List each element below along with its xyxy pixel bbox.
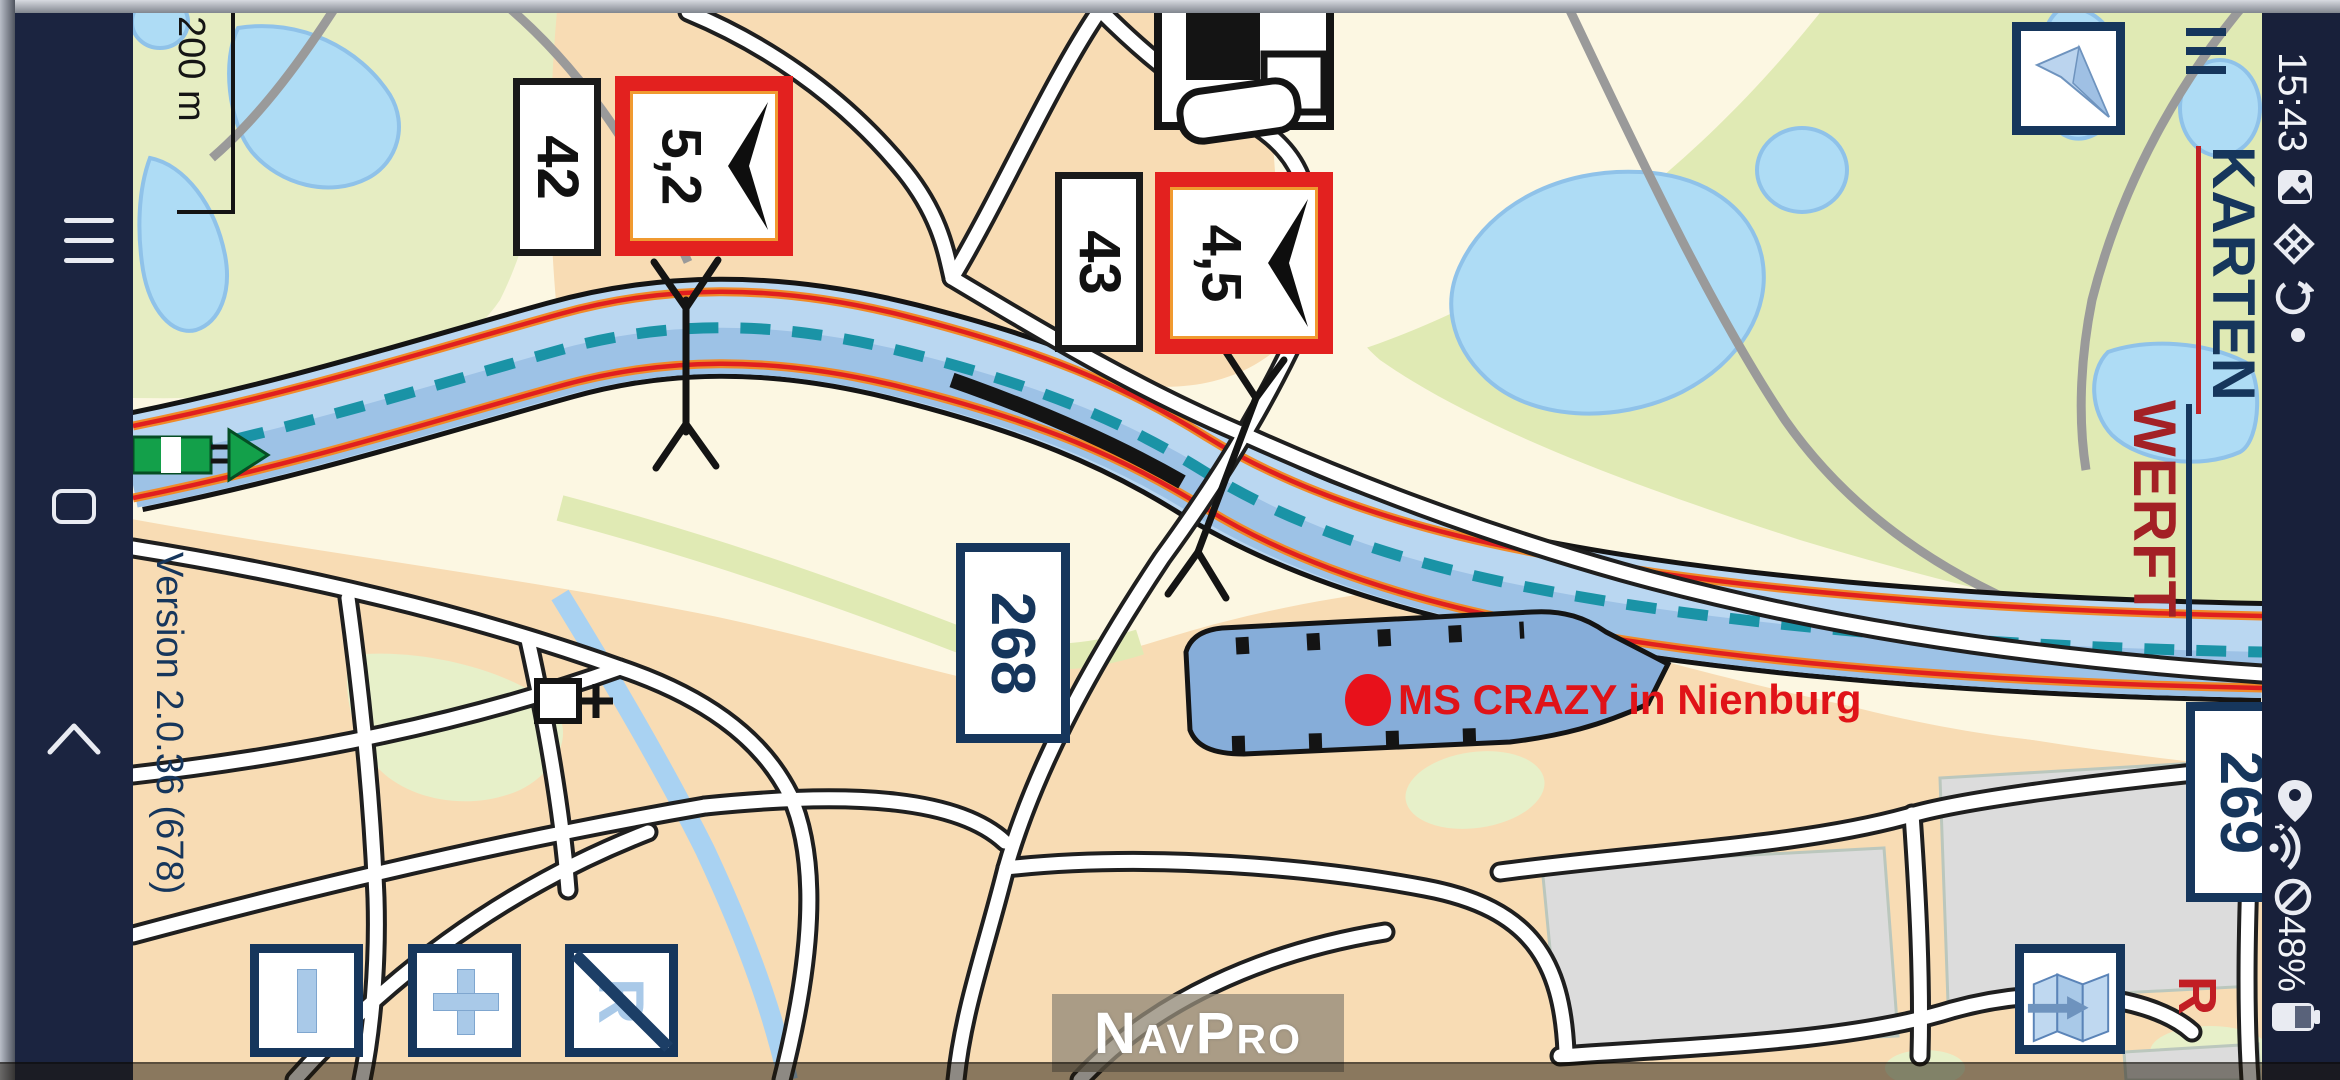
version-label: Version 2.0.36 (678) bbox=[147, 552, 190, 894]
android-nav-bar bbox=[15, 0, 133, 1080]
route-letter: R bbox=[2166, 976, 2228, 1015]
hectometer-sign-5-2: 5,2 bbox=[615, 76, 793, 256]
screen-bezel-left bbox=[0, 0, 15, 1080]
wifi-icon bbox=[2266, 824, 2316, 872]
menu-icon bbox=[2186, 28, 2226, 36]
tank-symbol-icon bbox=[1158, 0, 1330, 144]
navpro-app-screen: 200 m Version 2.0.36 (678) 42 5,2 43 4,5… bbox=[0, 0, 2340, 1080]
menu-icon bbox=[2186, 47, 2226, 55]
scale-label: 200 m bbox=[169, 16, 212, 122]
zoom-out-button[interactable] bbox=[250, 944, 363, 1057]
km-sign-43: 43 bbox=[1055, 172, 1143, 352]
vessel-position-dot[interactable] bbox=[1345, 674, 1391, 726]
waypoint-sign-268: 268 bbox=[956, 543, 1070, 743]
battery-percent: 48% bbox=[2269, 916, 2312, 992]
logo-text-bottom: WERFT bbox=[2125, 108, 2183, 692]
app-name: NavPro bbox=[1094, 1000, 1302, 1067]
hectometer-sign-4-5: 4,5 bbox=[1155, 172, 1333, 354]
pennant-icon bbox=[718, 96, 772, 236]
location-icon bbox=[2276, 778, 2314, 824]
menu-icon bbox=[64, 218, 114, 223]
record-track-button[interactable]: R bbox=[565, 944, 678, 1057]
battery-icon bbox=[2270, 998, 2324, 1036]
logo-text-top: KARTEN bbox=[2204, 108, 2262, 692]
screen-bezel-top bbox=[0, 0, 2340, 13]
vessel-marker-label: MS CRAZY in Nienburg bbox=[1398, 674, 1862, 726]
kartenwerft-logo: KARTEN WERFT bbox=[2130, 108, 2262, 692]
menu-icon bbox=[2186, 66, 2226, 74]
map-menu-button[interactable] bbox=[2186, 28, 2226, 78]
home-button[interactable] bbox=[52, 489, 96, 524]
zoom-in-button[interactable] bbox=[408, 944, 521, 1057]
dnd-icon bbox=[2272, 876, 2314, 918]
north-arrow-icon bbox=[2021, 31, 2116, 126]
no-data-icon bbox=[2272, 222, 2316, 266]
zoom-in-icon bbox=[433, 969, 497, 1033]
back-button[interactable] bbox=[44, 714, 104, 758]
north-arrow-button[interactable] bbox=[2012, 22, 2125, 135]
nautical-map-canvas[interactable] bbox=[0, 0, 2340, 1080]
notification-dot bbox=[2291, 328, 2305, 342]
menu-icon bbox=[64, 238, 114, 243]
clock: 15:43 bbox=[2269, 52, 2314, 152]
sync-icon bbox=[2272, 276, 2314, 318]
chart-select-button[interactable] bbox=[2015, 944, 2125, 1054]
bottom-gesture-strip bbox=[0, 1062, 2340, 1080]
km-sign-42: 42 bbox=[513, 78, 601, 256]
chart-select-icon bbox=[2024, 952, 2116, 1046]
recents-button[interactable] bbox=[15, 200, 133, 280]
pennant-icon bbox=[1258, 193, 1312, 333]
zoom-out-icon bbox=[297, 969, 317, 1033]
navpro-watermark: NavPro bbox=[1052, 994, 1344, 1072]
menu-icon bbox=[64, 258, 114, 263]
screenshot-icon bbox=[2274, 166, 2316, 208]
